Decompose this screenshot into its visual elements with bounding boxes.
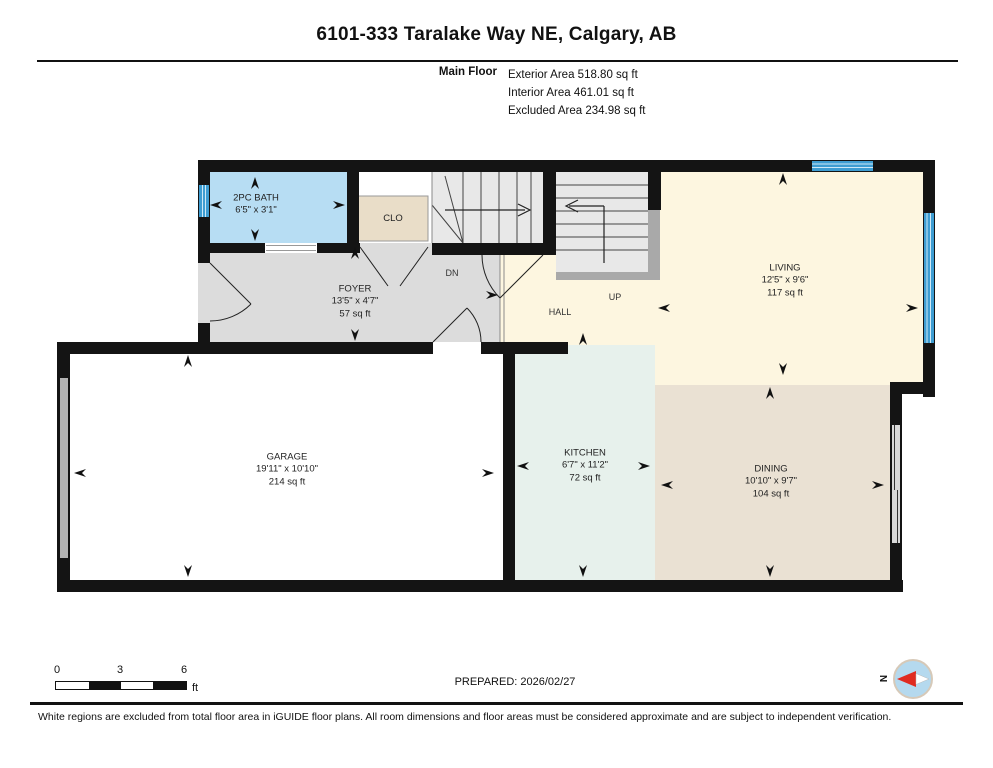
room-floors	[70, 172, 923, 580]
foyer-label: FOYER 13'5" x 4'7" 57 sq ft	[332, 283, 379, 320]
wall-stairs-living	[648, 160, 661, 210]
stairs-down-floor	[432, 172, 543, 243]
bath-label: 2PC BATH 6'5" x 3'1"	[233, 193, 279, 218]
stairs-down-label: DN	[446, 268, 459, 278]
kitchen-name: KITCHEN	[562, 447, 608, 459]
wall-bottom	[57, 580, 903, 592]
bath-dims: 6'5" x 3'1"	[233, 205, 279, 217]
kitchen-area: 72 sq ft	[562, 472, 608, 484]
closet-name: CLO	[383, 213, 403, 225]
scale-bar-ticks: 0 3 6	[50, 664, 196, 676]
dining-area: 104 sq ft	[745, 488, 797, 500]
garage-door	[60, 378, 68, 558]
floor-name-label: Main Floor	[0, 66, 497, 78]
living-dims: 12'5" x 9'6"	[762, 275, 809, 287]
scale-unit-label: ft	[192, 682, 198, 694]
dining-sliding-door	[892, 425, 900, 543]
excluded-area-line: Excluded Area 234.98 sq ft	[508, 102, 645, 120]
wall-stairs-divider	[543, 160, 556, 255]
scale-tick-6: 6	[181, 664, 187, 676]
garage-area: 214 sq ft	[256, 476, 318, 488]
kitchen-label: KITCHEN 6'7" x 11'2" 72 sq ft	[562, 447, 608, 484]
living-area: 117 sq ft	[762, 287, 809, 299]
footer-divider	[30, 702, 963, 705]
bath-door-sill	[265, 243, 317, 253]
exterior-area-line: Exterior Area 518.80 sq ft	[508, 66, 645, 84]
page-title: 6101-333 Taralake Way NE, Calgary, AB	[0, 24, 993, 46]
compass-icon: N	[893, 659, 933, 699]
dining-name: DINING	[745, 463, 797, 475]
compass-needle	[895, 661, 931, 697]
foyer-name: FOYER	[332, 283, 379, 295]
dining-label: DINING 10'10" x 9'7" 104 sq ft	[745, 463, 797, 500]
floorplan-page: 6101-333 Taralake Way NE, Calgary, AB Ma…	[0, 0, 993, 768]
wall-bath-closet	[347, 160, 359, 253]
living-top-window	[812, 161, 873, 171]
scale-bar	[55, 681, 187, 690]
wall-garage-top	[57, 342, 433, 354]
dining-dims: 10'10" x 9'7"	[745, 476, 797, 488]
wall-garage-kitchen	[503, 354, 515, 580]
garage-dims: 19'11" x 10'10"	[256, 464, 318, 476]
stairs-up-label: UP	[609, 292, 622, 302]
hall-label: HALL	[549, 307, 572, 317]
stairs-rail-bottom	[556, 272, 660, 280]
living-label: LIVING 12'5" x 9'6" 117 sq ft	[762, 262, 809, 299]
area-summary: Exterior Area 518.80 sq ft Interior Area…	[508, 66, 645, 120]
bath-name: 2PC BATH	[233, 193, 279, 205]
scale-tick-0: 0	[54, 664, 60, 676]
kitchen-dims: 6'7" x 11'2"	[562, 460, 608, 472]
foyer-area: 57 sq ft	[332, 308, 379, 320]
garage-name: GARAGE	[256, 451, 318, 463]
wall-kitchen-stub	[481, 342, 568, 354]
garage-label: GARAGE 19'11" x 10'10" 214 sq ft	[256, 451, 318, 488]
title-divider	[37, 60, 958, 62]
living-name: LIVING	[762, 262, 809, 274]
floor-plan: 2PC BATH 6'5" x 3'1" CLO FOYER 13'5" x 4…	[57, 160, 935, 592]
bath-window	[199, 185, 209, 217]
floor-plan-canvas	[57, 160, 935, 592]
stairs-rail-right	[648, 210, 660, 272]
wall-stairs-bottom	[432, 243, 556, 255]
front-door-opening	[198, 263, 210, 323]
foyer-dims: 13'5" x 4'7"	[332, 296, 379, 308]
living-right-window	[924, 213, 934, 343]
scale-tick-3: 3	[117, 664, 123, 676]
wall-bath-bottom-left	[198, 243, 265, 253]
prepared-date: PREPARED: 2026/02/27	[330, 676, 700, 688]
footer-disclaimer: White regions are excluded from total fl…	[38, 711, 968, 723]
interior-area-line: Interior Area 461.01 sq ft	[508, 84, 645, 102]
closet-label: CLO	[383, 213, 403, 225]
compass-north-label: N	[879, 675, 890, 682]
